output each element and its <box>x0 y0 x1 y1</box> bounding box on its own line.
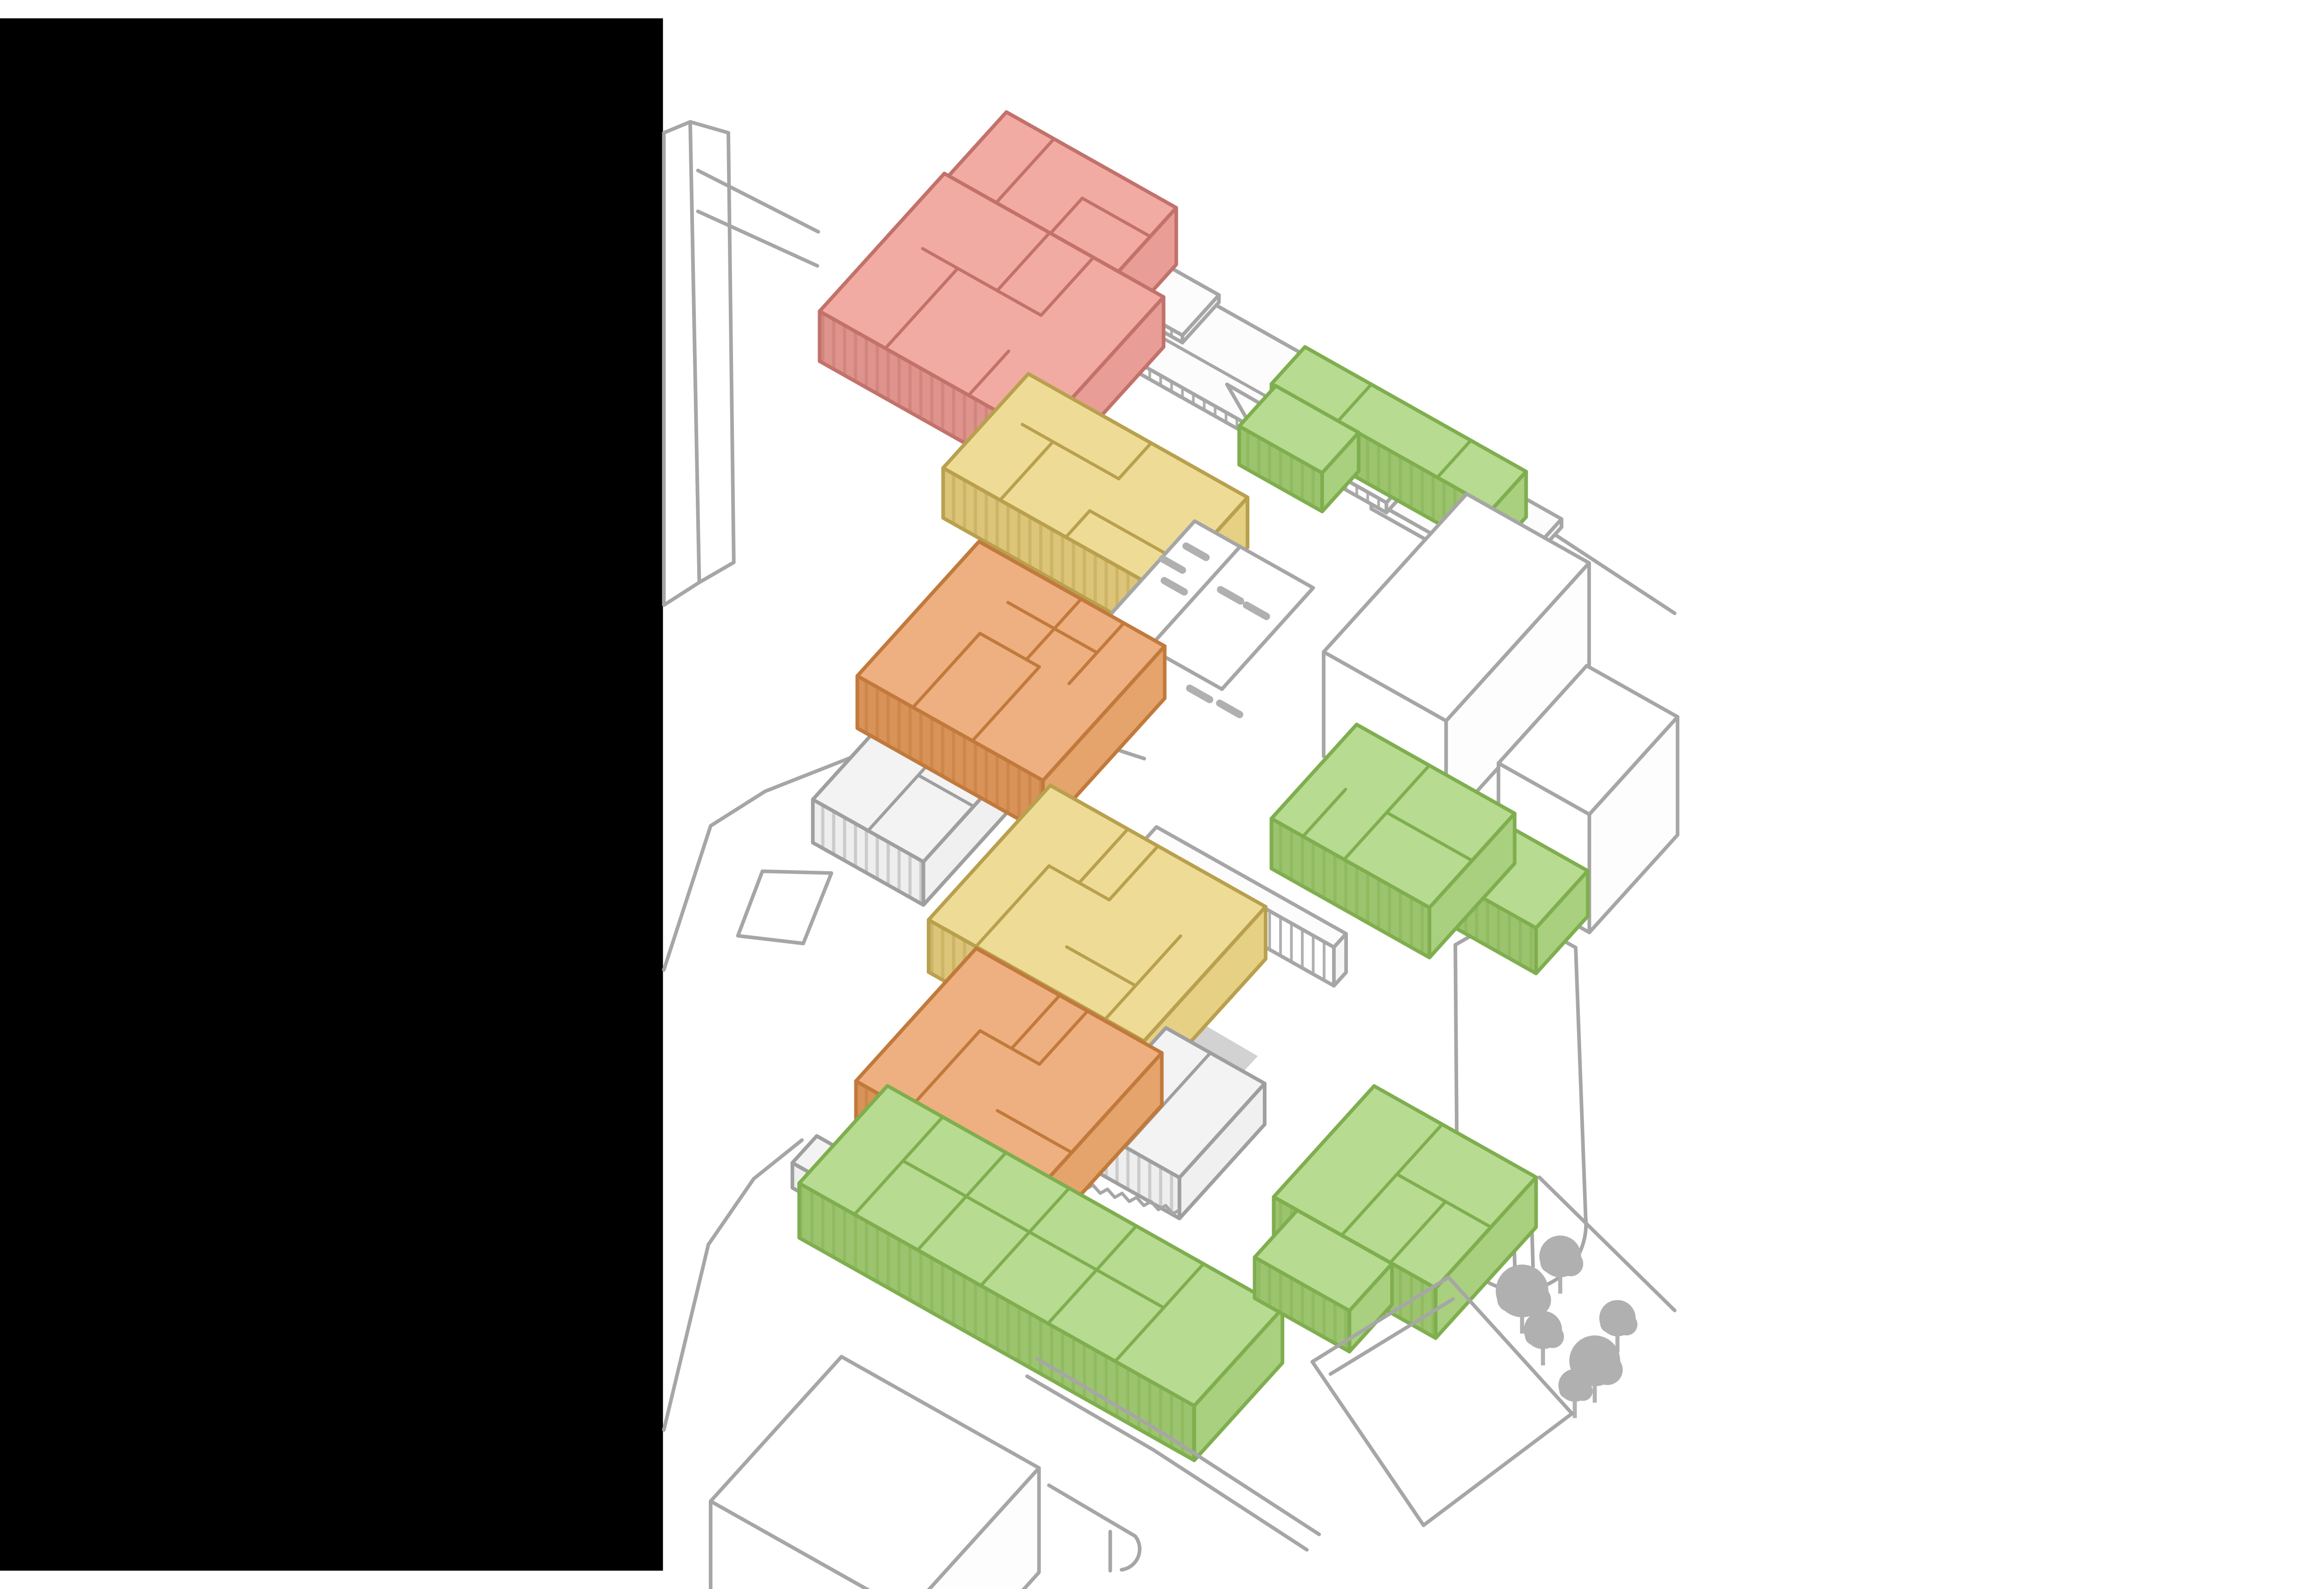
left-black-panel <box>0 18 663 1570</box>
context-tower-left-side <box>690 122 734 583</box>
lane-hook <box>1049 1485 1140 1570</box>
site-plan-scene <box>0 0 2324 1589</box>
site-parcel-lower <box>664 1140 802 1430</box>
context-building-bottom-left <box>711 1357 1039 1589</box>
exploded-axonometric-diagram <box>0 0 2324 1589</box>
site-courtyard <box>738 871 832 943</box>
